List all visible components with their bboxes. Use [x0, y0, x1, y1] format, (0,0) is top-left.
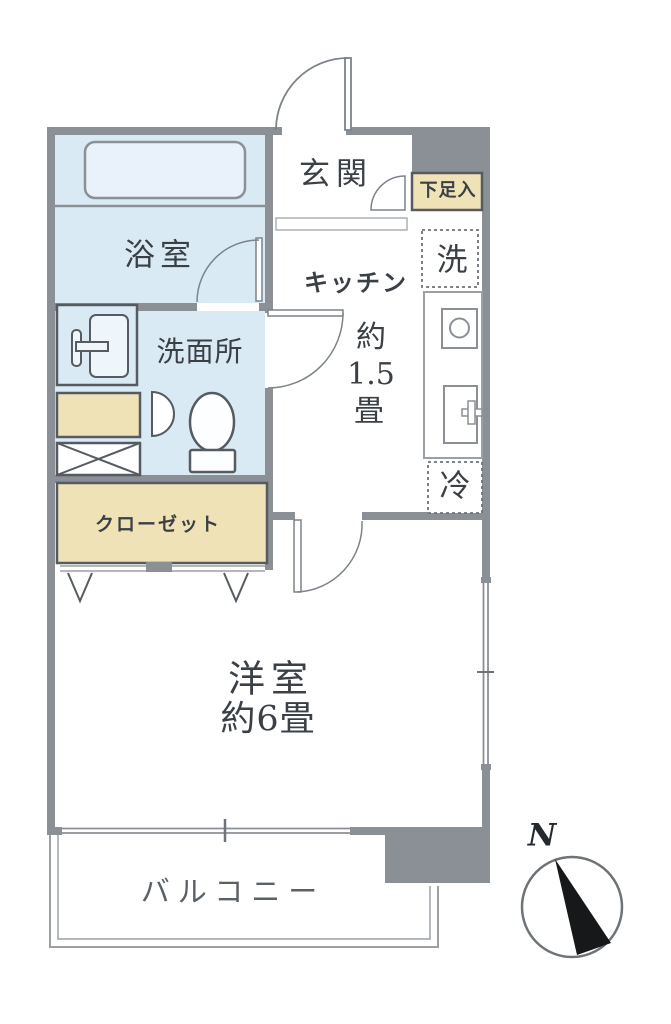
wall-block-top-right [412, 135, 482, 173]
label-closet: クローゼット [95, 516, 221, 535]
laundry-pan [57, 393, 140, 437]
label-washer: 洗 [437, 246, 468, 277]
bathtub [85, 142, 245, 198]
label-compass-north: N [528, 821, 556, 852]
label-shoe-cabinet: 下足入 [420, 182, 477, 200]
sink-faucet-cross [468, 401, 475, 424]
label-balcony: バルコニー [141, 878, 325, 907]
window-right-gap [481, 582, 491, 765]
wall-kitchen-room-left [273, 512, 295, 520]
toilet-tank [190, 450, 235, 472]
label-fridge: 冷 [440, 472, 471, 503]
label-kitchen-size-unit: 畳 [354, 397, 384, 427]
label-western-room: 洋室 [228, 661, 314, 698]
label-kitchen: キッチン [304, 271, 408, 295]
label-western-room-size: 約6畳 [220, 703, 315, 738]
closet-track-tab [146, 562, 172, 572]
washbasin-faucet [76, 342, 108, 351]
window-bottom-gap [62, 826, 350, 836]
washroom-door-leaf [268, 310, 343, 316]
floorplan-drawing [0, 0, 671, 1024]
entrance-opening [282, 127, 346, 135]
bath-door-leaf [256, 238, 262, 301]
wall-block-balcony [385, 835, 490, 883]
stove [442, 309, 477, 348]
window-right-cap-top [481, 577, 491, 583]
room-door-leaf [294, 520, 301, 592]
wall-center-upper [265, 135, 273, 313]
floorplan-canvas: 玄関 下足入 浴室 洗面所 キッチン 約 1.5 畳 洗 冷 クローゼット 洋室… [0, 0, 671, 1024]
entrance-door-arc [276, 58, 348, 130]
label-kitchen-size-prefix: 約 [356, 323, 386, 353]
toilet-bowl [190, 393, 234, 451]
bath-door-opening [197, 303, 259, 311]
entrance-door-leaf [345, 58, 351, 130]
label-washroom: 洗面所 [156, 338, 243, 366]
wall-top [47, 127, 490, 135]
label-genkan: 玄関 [299, 160, 373, 191]
wall-left [47, 127, 55, 835]
entrance-step [276, 218, 407, 230]
washroom-door-opening [265, 313, 273, 388]
label-bathroom: 浴室 [124, 241, 196, 272]
label-kitchen-size-value: 1.5 [347, 360, 395, 390]
compass [522, 857, 622, 957]
window-right-cap-bottom [481, 764, 491, 770]
